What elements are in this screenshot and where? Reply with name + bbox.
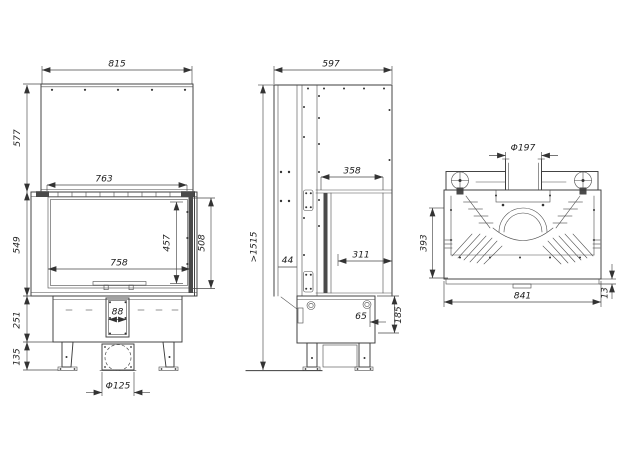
side-inlet-duct — [323, 345, 357, 367]
front-hood — [41, 84, 193, 192]
side-outlet-hole-left — [307, 302, 315, 310]
svg-text:311: 311 — [352, 250, 370, 261]
svg-text:88: 88 — [112, 307, 124, 318]
side-leg-back — [359, 343, 370, 367]
front-hood-rivets — [51, 89, 186, 91]
top-flue-collar-outer — [499, 208, 547, 232]
top-flue-collar-inner — [504, 213, 542, 232]
dim-channel-width: 88 — [109, 307, 127, 320]
drawing-canvas: 815 577 763 549 457 508 758 — [0, 0, 624, 460]
svg-text:Φ125: Φ125 — [106, 381, 131, 392]
dim-outlet-offset: 65 — [355, 307, 386, 327]
svg-text:13: 13 — [600, 287, 611, 299]
top-ladder-right — [553, 196, 583, 228]
svg-text:44: 44 — [282, 255, 294, 266]
dim-depth: 597 — [274, 59, 392, 85]
front-view: 815 577 763 549 457 508 758 — [12, 59, 216, 397]
dim-base-height: 251 — [12, 296, 54, 342]
top-cap-right — [575, 172, 592, 195]
dim-hood-inner-width: 763 — [47, 174, 187, 192]
dim-firebox-height: 549 — [12, 192, 54, 296]
svg-text:393: 393 — [419, 234, 430, 252]
svg-text:549: 549 — [12, 236, 23, 254]
front-handle — [93, 282, 146, 286]
front-hinge-left — [36, 191, 49, 197]
dim-min-height: >1515 — [249, 85, 275, 370]
svg-text:>1515: >1515 — [249, 231, 260, 262]
side-leg-front — [307, 343, 317, 367]
top-damper-plate — [496, 190, 550, 202]
svg-text:758: 758 — [110, 258, 128, 269]
dim-lip-height: 13 — [599, 264, 616, 299]
side-view: 597 >1515 358 44 311 65 185 — [246, 59, 404, 371]
front-inlet-duct — [102, 344, 134, 370]
top-hatch-right — [543, 234, 593, 264]
dim-base-depth: 185 — [377, 296, 404, 333]
top-view: Φ197 393 841 13 — [419, 143, 617, 308]
top-hatch-left — [452, 234, 502, 264]
front-door-edge — [189, 194, 194, 293]
svg-text:251: 251 — [12, 311, 23, 329]
dim-glass-inner-depth: 311 — [338, 250, 392, 267]
svg-text:Φ197: Φ197 — [511, 143, 536, 154]
front-leg-right — [163, 342, 174, 367]
svg-text:597: 597 — [322, 59, 340, 70]
dim-leg-height: 135 — [12, 342, 59, 370]
front-leg-left — [62, 342, 73, 367]
top-cap-left — [452, 172, 469, 195]
dim-body-width: 841 — [444, 281, 601, 307]
dim-glass-height: 457 — [162, 202, 184, 284]
fireplace-insert-technical-drawing: 815 577 763 549 457 508 758 — [0, 0, 624, 460]
svg-text:457: 457 — [162, 234, 173, 252]
svg-text:577: 577 — [12, 129, 23, 147]
dim-frame-gap: 44 — [278, 255, 297, 267]
svg-text:763: 763 — [95, 174, 113, 185]
svg-text:65: 65 — [355, 311, 367, 322]
dim-inlet-diameter: Φ125 — [86, 372, 150, 396]
top-lip — [446, 279, 599, 284]
top-deflector-curve — [493, 228, 553, 241]
svg-text:185: 185 — [393, 306, 404, 324]
front-frame-ticks — [58, 192, 170, 197]
svg-text:841: 841 — [514, 291, 532, 302]
front-base — [53, 296, 182, 342]
dim-door-height: 508 — [193, 198, 215, 289]
dim-flue-diameter: Φ197 — [489, 143, 558, 160]
top-body — [444, 190, 601, 279]
svg-text:815: 815 — [108, 59, 126, 70]
dim-hood-width: 815 — [42, 59, 192, 85]
side-rivets — [280, 88, 391, 257]
dim-hood-height: 577 — [12, 84, 41, 192]
side-glass-edge — [324, 193, 328, 293]
svg-text:135: 135 — [12, 348, 23, 366]
svg-text:358: 358 — [343, 166, 361, 177]
front-inlet-circle — [105, 345, 131, 371]
top-ladder-left — [464, 196, 494, 228]
dim-glass-depth: 358 — [321, 166, 383, 191]
dim-glass-width: 758 — [48, 258, 190, 270]
svg-text:508: 508 — [197, 234, 208, 252]
